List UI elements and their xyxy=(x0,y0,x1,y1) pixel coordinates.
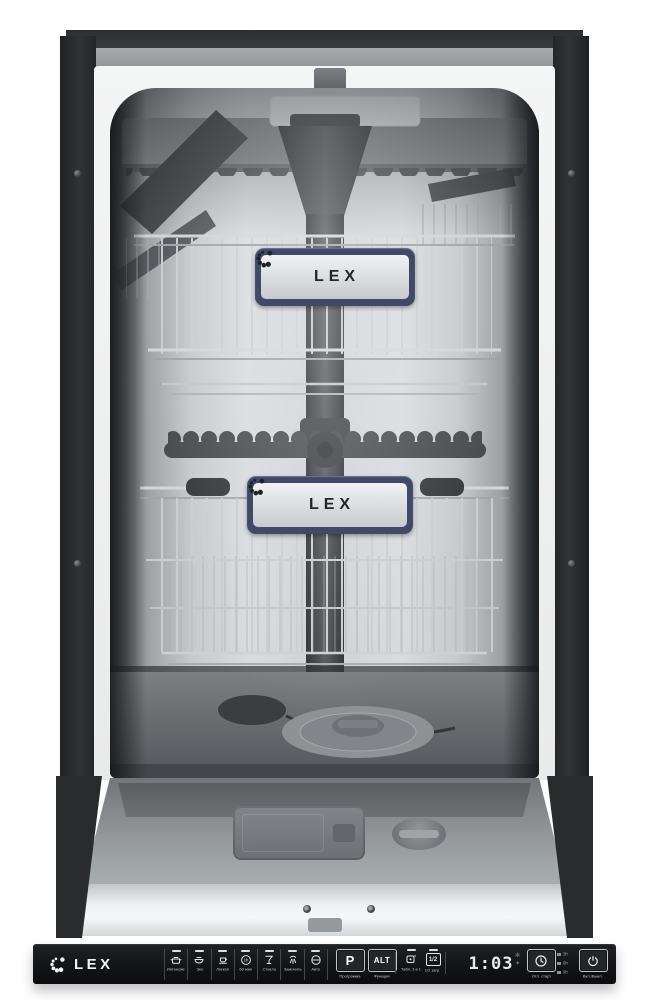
spray-tower xyxy=(278,114,372,694)
cabinet-top-edge xyxy=(66,30,583,50)
program-light: Легкая xyxy=(211,949,234,980)
program-label: Эко xyxy=(196,967,203,970)
program-led xyxy=(288,950,297,952)
delay-start-group: Отл. старт xyxy=(523,949,559,980)
function-button: ALT xyxy=(368,949,397,972)
tub-interior-graphic xyxy=(110,88,539,778)
divider xyxy=(445,952,446,974)
salt-indicator-icon: ✻ xyxy=(515,953,520,960)
delay-led xyxy=(557,971,561,975)
delay-step-indicators: 3h 6h 9h xyxy=(557,951,570,976)
half-load-icon: 1/2 xyxy=(426,953,441,966)
program-button-group: P Программа xyxy=(332,949,368,980)
wine-glass-icon xyxy=(263,954,275,966)
program-60min: 1h 60 мин xyxy=(234,949,257,980)
door-latch-tab xyxy=(308,918,342,932)
option-led xyxy=(429,949,438,951)
tablet-icon xyxy=(405,953,417,965)
open-door-inner-panel xyxy=(70,778,579,936)
badge-brand-text: LEX xyxy=(305,496,355,514)
badge-brand-text: LEX xyxy=(310,268,360,286)
lex-logo-icon xyxy=(49,955,67,973)
program-led xyxy=(172,950,181,952)
program-label: 60 мин xyxy=(240,967,253,970)
lower-rack-badge: LEX xyxy=(247,476,413,534)
program-soak: Замочить xyxy=(280,949,303,980)
function-button-label: Функция xyxy=(374,974,390,977)
delay-step: 3h xyxy=(557,951,570,958)
half-load-option: 1/2 1/2 загр. xyxy=(421,949,445,974)
brand-logo-text: LEX xyxy=(74,956,114,973)
folding-shelf-left xyxy=(120,110,248,234)
upper-rack-badge: LEX xyxy=(255,248,415,306)
program-label: Авто xyxy=(311,967,320,970)
control-panel: LEX Интенсив Эко xyxy=(33,944,616,984)
svg-text:1h: 1h xyxy=(244,958,249,963)
program-button-label: Программа xyxy=(340,974,361,977)
auto-icon xyxy=(310,954,322,966)
detergent-dispenser xyxy=(233,806,365,860)
delay-led xyxy=(557,962,561,966)
brand-logo: LEX xyxy=(49,944,114,984)
program-led xyxy=(265,950,274,952)
delay-start-button xyxy=(527,949,556,972)
half-load-label: 1/2 загр. xyxy=(425,968,441,971)
tub-floor xyxy=(110,666,539,778)
delay-step-label: 3h xyxy=(563,952,568,956)
power-button xyxy=(579,949,608,972)
program-label: Легкая xyxy=(216,967,229,970)
program-label: Замочить xyxy=(284,967,302,970)
cabinet-side-left xyxy=(60,36,96,780)
pot-icon xyxy=(170,954,182,966)
delay-step-label: 6h xyxy=(563,961,568,965)
top-spray-duct xyxy=(122,118,527,176)
delay-start-label: Отл. старт xyxy=(531,974,550,977)
program-led xyxy=(241,950,250,952)
door-latch-receiver xyxy=(314,68,346,90)
basket-handle-right xyxy=(420,478,464,496)
power-icon xyxy=(586,954,600,968)
screw-icon xyxy=(568,170,575,177)
salt-reservoir-cap xyxy=(218,695,286,725)
clock-1h-icon: 1h xyxy=(240,954,252,966)
lex-logo-icon xyxy=(255,248,275,268)
display-indicators: ✻ ✦ xyxy=(515,953,520,968)
tabs-option-label: Табл. 3 в 1 xyxy=(401,967,421,970)
cabinet-side-right xyxy=(553,36,589,780)
cup-icon xyxy=(217,954,229,966)
rinse-aid-indicator-icon: ✦ xyxy=(515,961,520,968)
dispenser-latch xyxy=(333,824,355,842)
program-eco: Эко xyxy=(187,949,210,980)
plate-icon xyxy=(193,954,205,966)
screw-icon xyxy=(74,560,81,567)
duct-reflector-plate xyxy=(270,96,420,126)
screw-icon xyxy=(367,905,375,913)
program-auto: Авто xyxy=(304,949,327,980)
program-led xyxy=(195,950,204,952)
time-display: 1:03 xyxy=(467,952,515,976)
program-selector-row: Интенсив Эко Легкая 1h xyxy=(164,949,328,980)
delay-step: 9h xyxy=(557,969,570,976)
dishwasher-photo: LEX LEX L xyxy=(0,0,649,1000)
basket-handle-left xyxy=(186,478,230,496)
program-label: Стекло xyxy=(263,967,276,970)
spray-icon xyxy=(287,954,299,966)
program-button: P xyxy=(336,949,365,972)
drain-filter xyxy=(282,706,434,758)
power-button-group: Вкл./Выкл. xyxy=(575,949,611,980)
folding-shelf-right xyxy=(428,168,516,202)
delay-led xyxy=(557,953,561,957)
power-button-label: Вкл./Выкл. xyxy=(583,974,603,977)
program-label: Интенсив xyxy=(167,967,185,970)
tub-interior: LEX LEX xyxy=(110,88,539,778)
program-led xyxy=(218,950,227,952)
screw-icon xyxy=(74,170,81,177)
program-intensive: Интенсив xyxy=(164,949,187,980)
option-led xyxy=(407,949,416,951)
divider xyxy=(395,952,396,974)
lex-logo-icon xyxy=(247,476,267,496)
program-glass: Стекло xyxy=(257,949,280,980)
program-led xyxy=(311,950,320,952)
delay-step: 6h xyxy=(557,960,570,967)
display-digits: 1:03 xyxy=(469,954,514,974)
screw-icon xyxy=(303,905,311,913)
delay-step-label: 9h xyxy=(563,970,568,974)
clock-icon xyxy=(534,954,548,968)
middle-spray-arm xyxy=(164,430,486,468)
tabs-3in1-option: Табл. 3 в 1 xyxy=(399,949,423,973)
screw-icon xyxy=(568,560,575,567)
dispenser-lid xyxy=(242,814,324,852)
rinse-aid-cap xyxy=(392,818,446,850)
